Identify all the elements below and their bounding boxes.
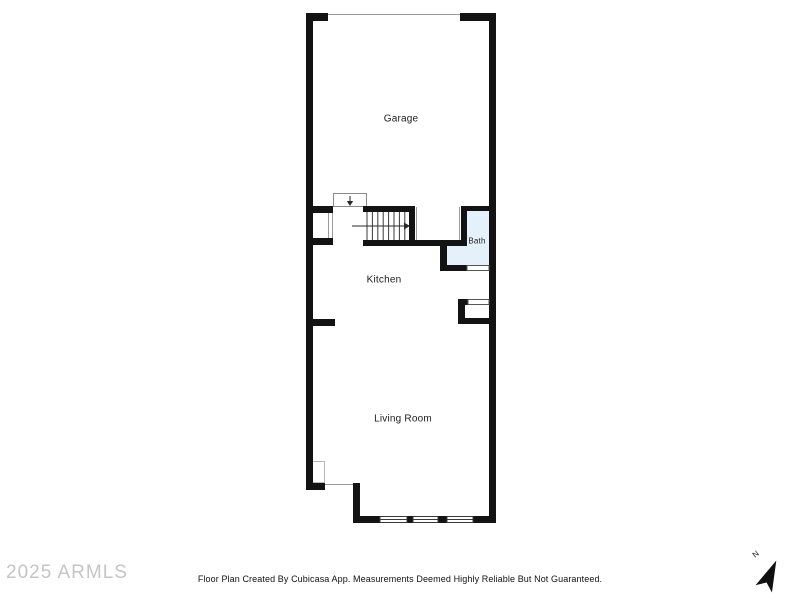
windows bbox=[380, 517, 473, 523]
wall-bath-bottom bbox=[440, 265, 467, 271]
window-3 bbox=[447, 517, 473, 523]
armls-watermark: 2025 ARMLS bbox=[6, 562, 128, 584]
wall-bath-left bbox=[461, 206, 467, 243]
cased-openings bbox=[467, 266, 489, 305]
door-swing-outline bbox=[312, 462, 325, 483]
wall-left bbox=[306, 13, 313, 490]
north-arrow-icon: N bbox=[742, 545, 792, 597]
wall-kitchen-living-stub bbox=[306, 319, 335, 326]
window-1 bbox=[380, 517, 407, 523]
wall-bottom-left-stub bbox=[306, 483, 325, 490]
footer-disclaimer: Floor Plan Created By Cubicasa App. Meas… bbox=[198, 574, 602, 584]
wall-stair-bottom bbox=[363, 240, 467, 246]
staircase bbox=[334, 194, 411, 241]
north-label: N bbox=[751, 549, 761, 560]
compass: N bbox=[742, 545, 792, 597]
closet-opening bbox=[468, 300, 489, 305]
wall-stair-top bbox=[363, 206, 415, 212]
wall-stair-right bbox=[409, 206, 415, 243]
bath-door-opening bbox=[467, 266, 489, 271]
window-2 bbox=[413, 517, 438, 523]
floor-plan-page: Garage Kitchen Bath Living Room 2025 ARM… bbox=[0, 0, 800, 600]
living-room-label: Living Room bbox=[374, 414, 432, 425]
wall-entry-upper-stub bbox=[306, 206, 333, 213]
kitchen-label: Kitchen bbox=[367, 275, 402, 286]
wall-closet-bottom bbox=[458, 318, 496, 324]
garage-label: Garage bbox=[384, 114, 419, 125]
floor-plan-drawing bbox=[0, 0, 800, 600]
wall-entry-lower-stub bbox=[306, 238, 333, 245]
bath-label: Bath bbox=[468, 237, 485, 246]
wall-right bbox=[489, 13, 496, 523]
wall-closet-top bbox=[458, 299, 468, 305]
